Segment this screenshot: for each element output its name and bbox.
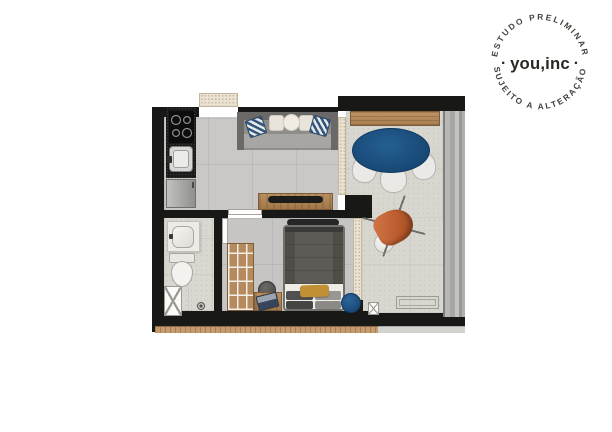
sofa (237, 112, 338, 150)
glass-window-bedroom-balcony (353, 218, 362, 300)
sofa-arm-right (331, 112, 338, 150)
wardrobe (227, 243, 254, 311)
cabinet-handle (192, 182, 194, 188)
hall-door-leaf (228, 209, 262, 215)
sink-faucet-icon (167, 156, 172, 163)
shower-drain-icon (197, 302, 205, 310)
blue-pouf (341, 293, 361, 313)
toilet-bowl (171, 261, 193, 287)
toilet (169, 253, 197, 288)
sofa-arm-left (237, 112, 244, 150)
stamp-dot-left: · (501, 55, 506, 72)
floor-plan-page: ESTUDO PRELIMINAR SUJEITO A ALTERAÇÃO · … (0, 0, 612, 432)
sofa-cushion-round (283, 114, 300, 131)
wall-divider-living-a (164, 210, 228, 218)
balcony-bench (350, 111, 440, 126)
washbasin (172, 226, 194, 248)
balcony-glass-railing (443, 111, 465, 317)
living-tv (268, 196, 323, 203)
bed-pillow-dark-2 (286, 301, 313, 309)
wall-left (152, 107, 164, 332)
basin-faucet-icon (169, 234, 173, 239)
oval-dining-table (352, 128, 430, 173)
balcony-slab-edge (378, 326, 465, 333)
wall-bottom-main (152, 311, 378, 326)
bed-blanket (285, 232, 343, 284)
shaft-bathroom (164, 286, 182, 316)
wall-top-balcony (338, 96, 465, 111)
bed-pillow-mustard (300, 284, 329, 297)
sink-basin (173, 150, 189, 168)
cooktop-icon (169, 111, 194, 143)
stamp-brand-text: you,inc (510, 54, 570, 73)
wall-bathroom-right (214, 218, 222, 311)
entrance-door (199, 93, 238, 107)
fridge-cabinet (166, 179, 196, 208)
youinc-stamp: ESTUDO PRELIMINAR SUJEITO A ALTERAÇÃO · … (481, 4, 599, 122)
glass-door-living-balcony (338, 117, 346, 195)
wall-divider-living-b (262, 210, 345, 218)
stamp-arc-top-text: ESTUDO PRELIMINAR (489, 12, 591, 58)
bathroom-door-leaf (222, 218, 228, 244)
kitchen-sink (169, 146, 193, 172)
bed-pillow-light-2 (315, 301, 341, 309)
balcony-floor-detail-inner (399, 299, 436, 306)
washbasin-counter (167, 221, 200, 252)
shaft-balcony (368, 302, 379, 315)
balcony-floor-detail (396, 296, 439, 309)
stamp-dot-right: · (574, 55, 579, 72)
tv-console (258, 193, 333, 210)
double-bed (283, 225, 345, 311)
sofa-cushion-square-left (269, 115, 284, 131)
